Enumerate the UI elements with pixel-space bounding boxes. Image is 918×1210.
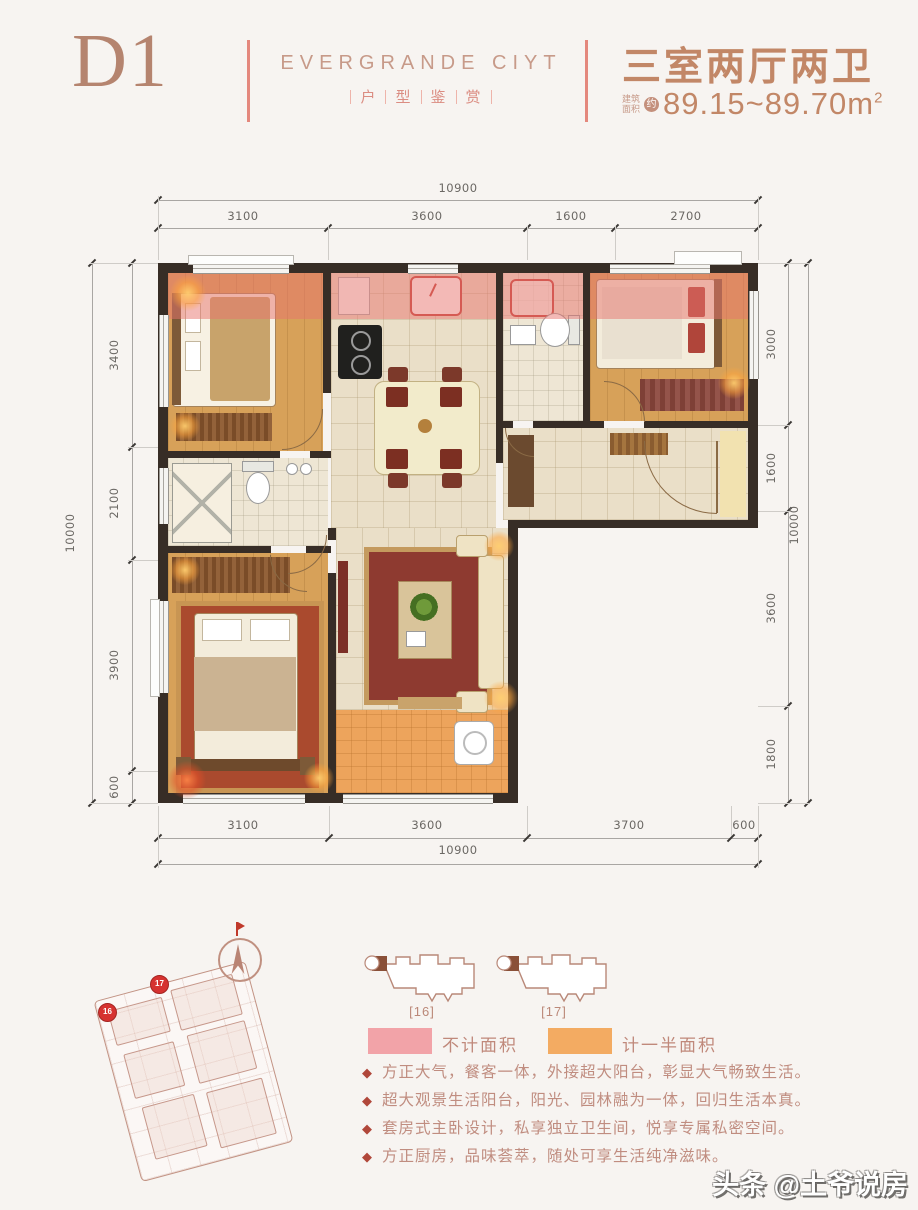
siteplan bbox=[93, 961, 293, 1182]
dim-right-seg-1: 3000 bbox=[764, 322, 778, 366]
pillow bbox=[185, 341, 201, 371]
place-mat bbox=[440, 449, 462, 469]
header-divider-left bbox=[247, 40, 250, 122]
window bbox=[408, 264, 458, 274]
room-summary-title: 三室两厅两卫 bbox=[622, 36, 874, 92]
place-mat bbox=[440, 387, 462, 407]
brand-name: EVERGRANDE CIYT bbox=[278, 52, 564, 75]
feature-text: 超大观景生活阳台，阳光、园林融为一体，回归生活本真。 bbox=[382, 1091, 811, 1110]
subtitle-separator bbox=[385, 90, 386, 104]
dimension-line bbox=[808, 263, 809, 803]
subtitle-char: 赏 bbox=[466, 86, 482, 107]
area-row: 建筑 面积 约 89.15~89.70m2 bbox=[622, 86, 883, 122]
washer-drum bbox=[463, 731, 487, 755]
dim-bottom-seg-4: 600 bbox=[714, 818, 774, 832]
floorplan-canvas bbox=[158, 263, 758, 803]
legend-label-no-area: 不计面积 bbox=[442, 1031, 518, 1056]
wall-segment bbox=[168, 451, 280, 458]
watermark: 头条 @土爷说房 bbox=[640, 1163, 908, 1202]
dim-left-overall: 10000 bbox=[63, 507, 77, 559]
window bbox=[610, 264, 710, 274]
extension-line bbox=[128, 771, 158, 772]
siteplan-marker-16: 16 bbox=[98, 1003, 117, 1022]
window-sill bbox=[188, 255, 294, 265]
area-value: 89.15~89.70m2 bbox=[663, 86, 883, 122]
dim-left-seg-2: 2100 bbox=[107, 481, 121, 525]
wall-segment bbox=[168, 546, 271, 553]
lamp-glow bbox=[170, 411, 200, 441]
subtitle-separator bbox=[350, 90, 351, 104]
extension-line bbox=[527, 806, 528, 836]
entry-threshold bbox=[720, 431, 746, 517]
lamp-glow bbox=[168, 761, 206, 799]
window bbox=[183, 794, 305, 804]
keyplan-unit-marker bbox=[365, 956, 379, 970]
extension-line bbox=[758, 425, 790, 426]
wall-segment bbox=[590, 421, 604, 428]
shower-stall bbox=[172, 463, 232, 543]
dim-top-seg-2: 3600 bbox=[397, 209, 457, 223]
wall-segment bbox=[508, 520, 758, 528]
basin-knob bbox=[300, 463, 312, 475]
dim-top-overall: 10900 bbox=[428, 181, 488, 195]
wall-segment bbox=[310, 451, 331, 458]
feature-item: ◆ 超大观景生活阳台，阳光、园林融为一体，回归生活本真。 bbox=[362, 1091, 918, 1110]
keyplan-outline bbox=[516, 955, 606, 1001]
subtitle-char: 户 bbox=[360, 86, 376, 107]
bullet-diamond-icon: ◆ bbox=[362, 1063, 372, 1082]
extension-line bbox=[90, 263, 158, 264]
dimension-line bbox=[132, 263, 133, 803]
dim-bottom-seg-3: 3700 bbox=[599, 818, 659, 832]
keyplan-label-16: [16] bbox=[362, 1004, 482, 1019]
tray bbox=[406, 631, 426, 647]
wall-segment bbox=[328, 573, 336, 793]
burner bbox=[351, 355, 371, 375]
wall-segment bbox=[583, 273, 590, 425]
wall-segment bbox=[496, 273, 503, 425]
extension-line bbox=[527, 226, 528, 260]
subtitle-separator bbox=[491, 90, 492, 104]
pillow bbox=[688, 323, 705, 353]
wall-segment bbox=[323, 273, 331, 393]
wall-segment bbox=[533, 421, 590, 428]
dim-right-seg-3: 3600 bbox=[764, 586, 778, 630]
extension-line bbox=[158, 806, 159, 868]
chair bbox=[442, 367, 462, 382]
brand-subtitle: 户 型 鉴 赏 bbox=[278, 86, 564, 107]
lamp-glow bbox=[484, 681, 518, 715]
extension-line bbox=[758, 196, 759, 260]
area-label-small: 建筑 面积 bbox=[622, 94, 640, 114]
siteplan-building bbox=[142, 1094, 208, 1160]
dim-right-overall: 10000 bbox=[787, 499, 801, 551]
dimension-line bbox=[158, 838, 758, 839]
wash-basin bbox=[510, 325, 536, 345]
feature-item: ◆ 方正大气，餐客一体，外接超大阳台，彰显大气畅致生活。 bbox=[362, 1063, 918, 1082]
lamp-glow bbox=[304, 763, 334, 793]
keyplan-unit-marker bbox=[497, 956, 511, 970]
unit-code: D1 bbox=[72, 18, 169, 105]
window bbox=[159, 468, 169, 524]
ac-platform bbox=[674, 251, 742, 265]
dim-right-seg-4: 1800 bbox=[764, 732, 778, 776]
legend-swatch-pink bbox=[368, 1028, 432, 1054]
place-mat bbox=[386, 387, 408, 407]
legend-label-half-area: 计一半面积 bbox=[622, 1031, 717, 1056]
pillow bbox=[202, 619, 242, 641]
window bbox=[159, 315, 169, 407]
dim-right-seg-2: 1600 bbox=[764, 446, 778, 490]
no-area-overlay-strip bbox=[168, 273, 748, 319]
subtitle-separator bbox=[421, 90, 422, 104]
wall-segment bbox=[508, 520, 518, 803]
dim-bottom-overall: 10900 bbox=[428, 843, 488, 857]
place-mat bbox=[386, 449, 408, 469]
teapot bbox=[418, 419, 432, 433]
extension-line bbox=[615, 226, 616, 260]
sofa bbox=[478, 555, 504, 689]
bullet-diamond-icon: ◆ bbox=[362, 1091, 372, 1110]
siteplan-building bbox=[186, 1020, 257, 1084]
plant bbox=[410, 593, 438, 621]
bullet-diamond-icon: ◆ bbox=[362, 1119, 372, 1138]
bed-blanket bbox=[194, 657, 296, 731]
extension-line bbox=[128, 560, 158, 561]
extension-line bbox=[90, 803, 158, 804]
chair bbox=[442, 473, 462, 488]
basin-knob bbox=[286, 463, 298, 475]
dim-top-seg-3: 1600 bbox=[541, 209, 601, 223]
lamp-glow bbox=[170, 555, 200, 585]
lamp-glow bbox=[718, 367, 750, 399]
dim-bottom-seg-1: 3100 bbox=[213, 818, 273, 832]
window-sill bbox=[150, 599, 160, 697]
dimension-line bbox=[92, 263, 93, 803]
subtitle-char: 型 bbox=[395, 86, 411, 107]
extension-line bbox=[758, 806, 759, 868]
feature-item: ◆ 套房式主卧设计，私享独立卫生间，悦享专属私密空间。 bbox=[362, 1119, 918, 1138]
approx-badge: 约 bbox=[644, 97, 659, 112]
lamp-glow bbox=[484, 531, 514, 561]
extension-line bbox=[329, 806, 330, 836]
extension-line bbox=[758, 263, 810, 264]
feature-text: 套房式主卧设计，私享独立卫生间，悦享专属私密空间。 bbox=[382, 1119, 795, 1138]
bed-headboard bbox=[190, 759, 300, 771]
flyer-page: D1 EVERGRANDE CIYT 户 型 鉴 赏 三室两厅两卫 建筑 面积 … bbox=[0, 0, 918, 1210]
wall-segment bbox=[644, 421, 748, 428]
extension-line bbox=[758, 706, 790, 707]
toilet-tank bbox=[242, 461, 274, 472]
tv-console bbox=[338, 561, 348, 653]
chair bbox=[388, 473, 408, 488]
wall-segment bbox=[496, 421, 513, 428]
dimension-line bbox=[158, 200, 758, 201]
siteplan-building bbox=[206, 1078, 277, 1149]
keyplan-label-17: [17] bbox=[494, 1004, 614, 1019]
pillow bbox=[250, 619, 290, 641]
dim-left-seg-3: 3900 bbox=[107, 643, 121, 687]
extension-line bbox=[758, 803, 810, 804]
area-label-line2: 面积 bbox=[622, 104, 640, 114]
dim-top-seg-1: 3100 bbox=[213, 209, 273, 223]
siteplan-building bbox=[107, 997, 170, 1046]
dimension-line bbox=[158, 864, 758, 865]
header-divider-right bbox=[585, 40, 588, 122]
keyplan-building-16 bbox=[362, 942, 482, 1004]
window bbox=[749, 291, 759, 379]
extension-line bbox=[731, 806, 732, 836]
extension-line bbox=[158, 196, 159, 260]
toilet bbox=[246, 472, 270, 504]
dim-bottom-seg-2: 3600 bbox=[397, 818, 457, 832]
dimension-line bbox=[158, 228, 758, 229]
balcony-window bbox=[343, 794, 493, 804]
window bbox=[159, 601, 169, 693]
keyplan-building-17 bbox=[494, 942, 614, 1004]
siteplan-building bbox=[123, 1041, 185, 1099]
siteplan-marker-17: 17 bbox=[150, 975, 169, 994]
extension-line bbox=[758, 511, 790, 512]
dim-top-seg-4: 2700 bbox=[656, 209, 716, 223]
subtitle-char: 鉴 bbox=[431, 86, 447, 107]
bullet-diamond-icon: ◆ bbox=[362, 1147, 372, 1166]
window bbox=[193, 264, 289, 274]
wall-segment bbox=[496, 428, 503, 463]
lamp-glow bbox=[170, 275, 206, 311]
burner bbox=[351, 331, 371, 351]
area-label-line1: 建筑 bbox=[622, 94, 640, 104]
area-superscript: 2 bbox=[874, 90, 883, 107]
chair bbox=[388, 367, 408, 382]
compass-north-flag-icon bbox=[238, 922, 245, 930]
extension-line bbox=[328, 226, 329, 260]
legend-swatch-orange bbox=[548, 1028, 612, 1054]
subtitle-separator bbox=[456, 90, 457, 104]
extension-line bbox=[128, 447, 158, 448]
keyplan-outline bbox=[384, 955, 474, 1001]
wall-segment bbox=[328, 528, 336, 540]
entry-door-leaf bbox=[716, 441, 718, 513]
feature-text: 方正大气，餐客一体，外接超大阳台，彰显大气畅致生活。 bbox=[382, 1063, 811, 1082]
dim-left-seg-1: 3400 bbox=[107, 333, 121, 377]
side-shelf bbox=[398, 697, 462, 709]
